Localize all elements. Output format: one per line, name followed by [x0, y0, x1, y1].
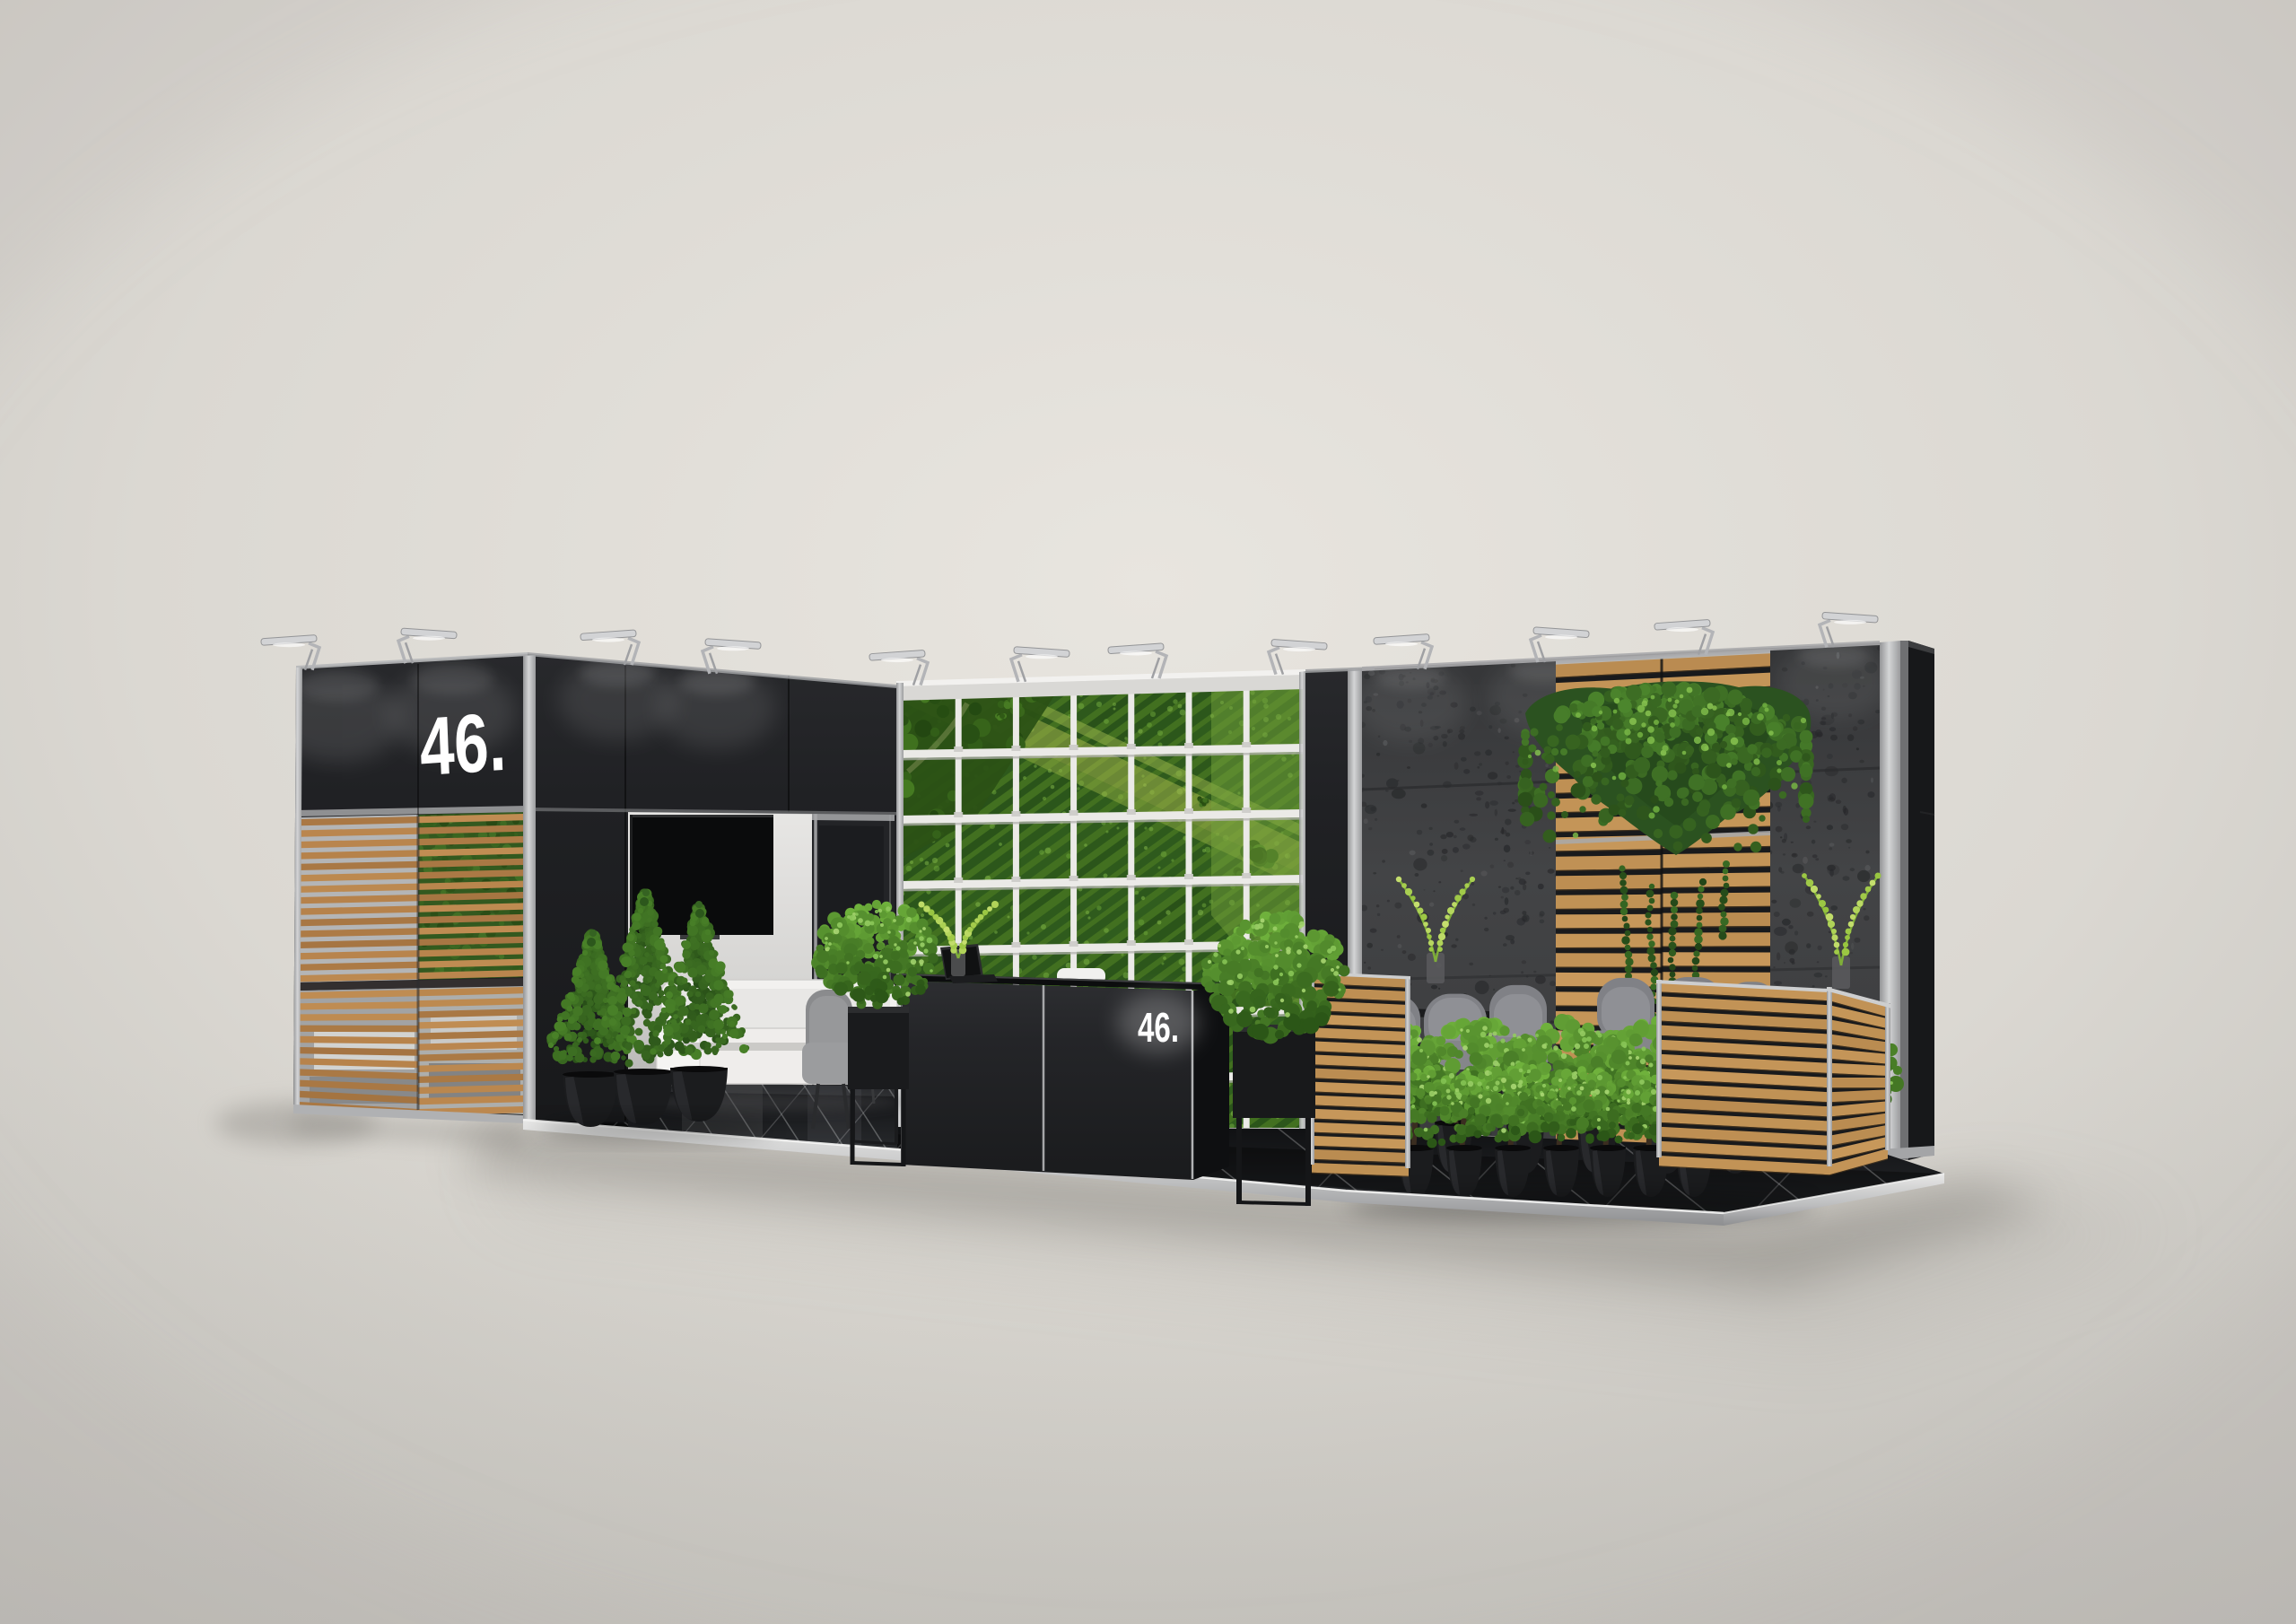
svg-text:46.: 46. [418, 695, 508, 794]
svg-text:46.: 46. [1138, 1006, 1179, 1051]
